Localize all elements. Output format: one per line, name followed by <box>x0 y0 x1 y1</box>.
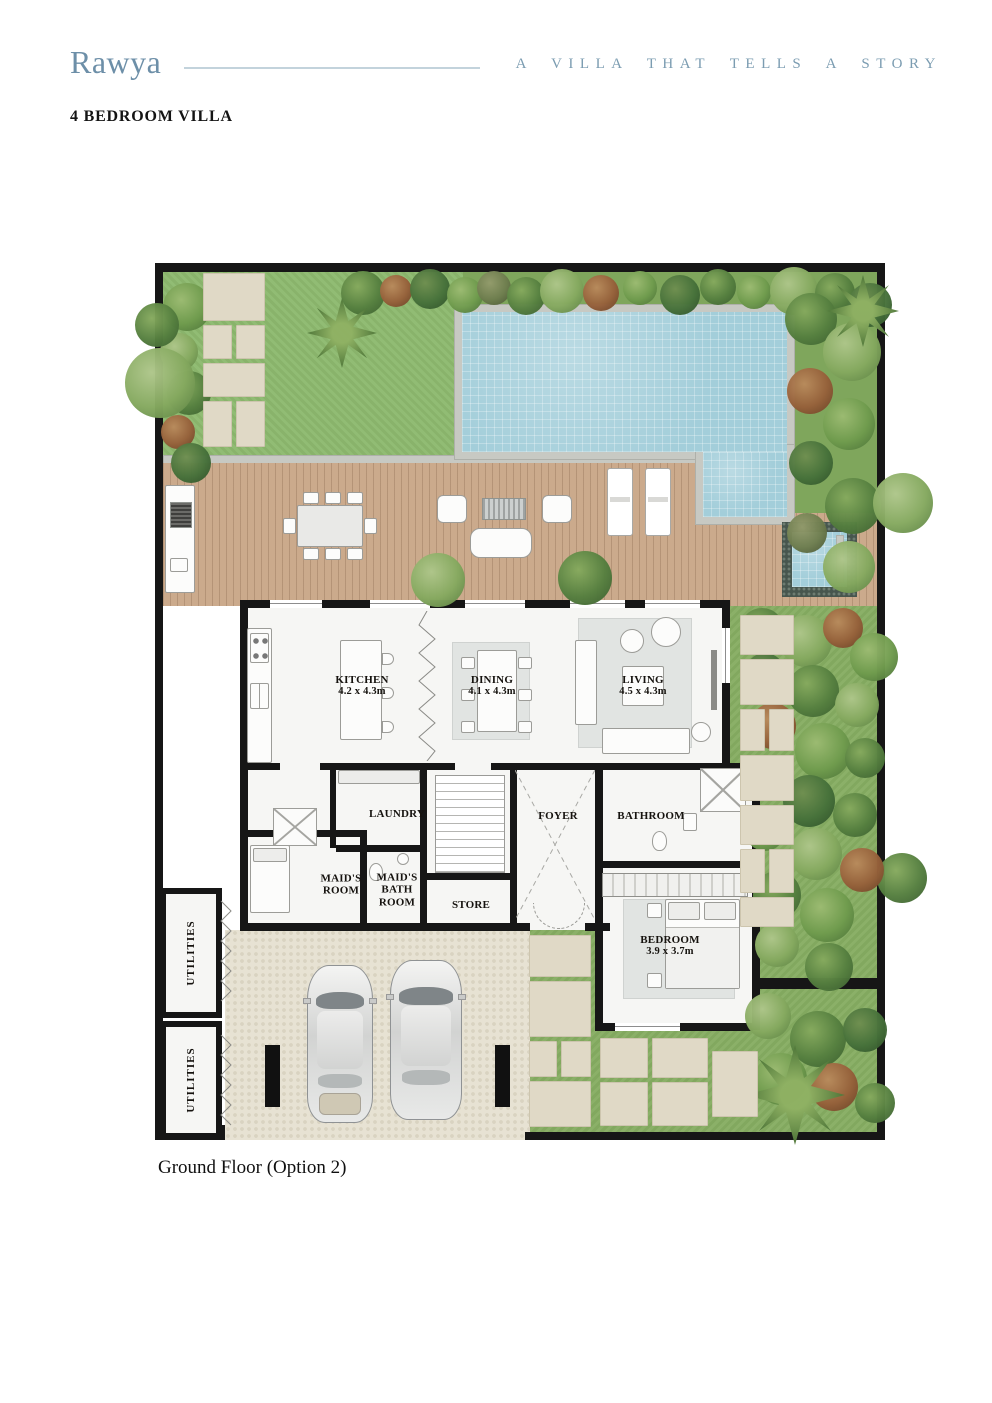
stone-paver <box>652 1038 708 1078</box>
stone-paver <box>740 805 794 845</box>
swimming-pool <box>462 312 787 452</box>
shrub <box>790 828 842 880</box>
shrub <box>125 348 195 418</box>
shrub <box>507 277 545 315</box>
stone-paver <box>712 1051 758 1117</box>
stone-paver <box>740 755 794 801</box>
outdoor-sofa <box>470 528 532 558</box>
stone-paver <box>203 325 232 359</box>
shrub <box>800 888 854 942</box>
shrub <box>737 275 771 309</box>
outdoor-chair <box>364 518 377 534</box>
lounge-chair <box>620 629 644 653</box>
stone-paver <box>740 849 765 893</box>
wash-basin <box>397 853 409 865</box>
shrub <box>840 848 884 892</box>
dining-chair <box>518 721 532 733</box>
shrub <box>833 793 877 837</box>
kitchen-sink <box>250 683 269 709</box>
shrub <box>341 271 385 315</box>
window <box>465 600 525 608</box>
bar-stool <box>382 721 394 733</box>
swimming-pool-lower <box>703 452 787 517</box>
bedroom-window <box>615 1023 680 1031</box>
louver-marks <box>219 899 233 1007</box>
stone-paver <box>236 325 265 359</box>
room-label-living: LIVING4.5 x 4.3m <box>619 674 667 698</box>
room-label-kitchen: KITCHEN4.2 x 4.3m <box>335 674 388 698</box>
car-windshield <box>399 987 452 1005</box>
room-label-maids-room: MAID'S ROOM <box>313 873 369 898</box>
folding-partition <box>417 611 437 761</box>
bed-pillow <box>668 902 700 920</box>
bar-stool <box>382 653 394 665</box>
car-mirror <box>386 994 394 1000</box>
outdoor-chair <box>325 548 341 560</box>
shrub <box>171 443 211 483</box>
dining-chair <box>461 657 475 669</box>
car-mirror <box>303 998 311 1004</box>
shrub <box>380 275 412 307</box>
outdoor-armchair <box>437 495 467 523</box>
room-label-store: STORE <box>452 899 490 911</box>
gate-pillar <box>495 1045 510 1107</box>
shrub <box>135 303 179 347</box>
stone-paver <box>203 401 232 447</box>
boundary-wall-north <box>155 263 885 272</box>
shower-tray <box>273 808 317 846</box>
shrub <box>805 943 853 991</box>
boundary-wall-south-right <box>525 1132 877 1140</box>
room-label-foyer: FOYER <box>538 810 578 822</box>
shrub <box>795 723 851 779</box>
outdoor-chair <box>325 492 341 504</box>
shrub <box>660 275 700 315</box>
sofa-vertical <box>575 640 597 725</box>
swivel-chair <box>651 617 681 647</box>
car-roof <box>317 1011 363 1069</box>
brochure-page: Rawya A VILLA THAT TELLS A STORY 4 BEDRO… <box>0 0 992 1403</box>
palm-tree <box>307 298 377 368</box>
bathroom-wall-south <box>595 861 760 868</box>
car-mirror <box>369 998 377 1004</box>
stone-paver <box>740 709 765 751</box>
nightstand <box>647 973 662 988</box>
bed-pillow <box>704 902 736 920</box>
room-label-bedroom: BEDROOM3.9 x 3.7m <box>640 934 699 958</box>
shrub <box>789 441 833 485</box>
car-rear-window <box>318 1074 362 1088</box>
room-label-utilities-2: UTILITIES <box>185 1047 197 1112</box>
shrub <box>877 853 927 903</box>
car-roof <box>401 1006 451 1065</box>
shrub <box>873 473 933 533</box>
nightstand <box>647 903 662 918</box>
outdoor-armchair <box>542 495 572 523</box>
window <box>645 600 700 608</box>
car-rear-window <box>402 1070 450 1084</box>
house-wall-south-left <box>240 923 530 931</box>
palm-tree <box>827 275 899 347</box>
sofa-horizontal <box>602 728 690 754</box>
car-trunk <box>319 1093 361 1116</box>
wash-basin <box>683 813 697 831</box>
shrub <box>477 271 511 305</box>
shrub <box>823 398 875 450</box>
tv-unit <box>711 650 717 710</box>
stove <box>250 633 269 663</box>
foyer-ceiling-marks <box>515 770 595 920</box>
car-sedan <box>307 965 373 1123</box>
shrub <box>540 269 584 313</box>
shrub <box>558 551 612 605</box>
driveway <box>225 930 530 1140</box>
room-label-utilities-1: UTILITIES <box>185 920 197 985</box>
room-label-dining: DINING4.1 x 4.3m <box>468 674 516 698</box>
stone-paver <box>600 1038 648 1078</box>
shrub <box>410 269 450 309</box>
door-opening <box>455 763 491 770</box>
shrub <box>787 513 827 553</box>
stone-paver <box>652 1082 708 1126</box>
room-label-maids-bath: MAID'S BATH ROOM <box>374 872 420 909</box>
stone-paver <box>529 1081 591 1127</box>
outdoor-chair <box>347 492 363 504</box>
bathroom-wall-west <box>595 763 603 868</box>
gate-pillar <box>265 1045 280 1107</box>
stone-paver <box>529 1041 557 1077</box>
laundry-counter <box>338 770 420 784</box>
house-wall-living-east <box>722 600 730 772</box>
dining-chair <box>518 657 532 669</box>
shrub <box>835 683 879 727</box>
side-table <box>691 722 711 742</box>
car-windshield <box>316 992 365 1009</box>
outdoor-dining-table <box>297 505 363 547</box>
shrub <box>623 271 657 305</box>
maids-bath-wall-north <box>336 845 426 852</box>
outdoor-chair <box>303 548 319 560</box>
stairs-wall-west <box>420 763 427 930</box>
page-title: 4 BEDROOM VILLA <box>70 108 233 126</box>
shrub <box>787 368 833 414</box>
shrub <box>823 323 881 381</box>
car-mirror <box>458 994 466 1000</box>
brand-logo: Rawya <box>70 44 161 81</box>
sun-lounger <box>607 468 633 536</box>
floor-plan: KITCHEN4.2 x 4.3m DINING4.1 x 4.3m LIVIN… <box>155 263 885 1140</box>
store-wall-north <box>427 873 517 880</box>
stone-paver <box>203 273 265 321</box>
dining-chair <box>518 689 532 701</box>
shrub <box>823 541 875 593</box>
louver-marks <box>219 1033 233 1131</box>
shrub <box>843 1008 887 1052</box>
stone-paver <box>600 1082 648 1126</box>
shrub <box>855 1083 895 1123</box>
outdoor-chair <box>303 492 319 504</box>
sun-lounger <box>645 468 671 536</box>
outdoor-coffee-table <box>482 498 526 520</box>
shrub <box>755 923 799 967</box>
stone-paver <box>236 401 265 447</box>
window <box>270 600 322 608</box>
shrub <box>845 738 885 778</box>
stone-paver <box>769 849 794 893</box>
wardrobe <box>602 873 748 897</box>
palm-tree <box>745 1045 845 1145</box>
bbq-grill <box>170 502 192 528</box>
stone-paver <box>740 659 794 705</box>
outdoor-chair <box>347 548 363 560</box>
header-divider-line <box>184 67 480 69</box>
room-label-laundry: LAUNDRY <box>369 808 425 820</box>
car-suv <box>390 960 462 1120</box>
shrub <box>850 633 898 681</box>
shrub <box>745 993 791 1039</box>
shrub <box>411 553 465 607</box>
staircase <box>435 775 505 873</box>
stone-paver <box>561 1041 591 1077</box>
room-label-bathroom: BATHROOM <box>617 810 684 822</box>
plan-caption: Ground Floor (Option 2) <box>158 1157 346 1179</box>
stone-paver <box>203 363 265 397</box>
living-window <box>722 628 730 683</box>
brand-tagline: A VILLA THAT TELLS A STORY <box>516 56 942 73</box>
stone-paver <box>740 897 794 927</box>
outdoor-chair <box>283 518 296 534</box>
shrub <box>583 275 619 311</box>
stone-paver <box>769 709 794 751</box>
stone-paver <box>529 935 591 977</box>
toilet <box>652 831 667 851</box>
shrub <box>700 269 736 305</box>
shrub <box>787 665 839 717</box>
dining-chair <box>461 721 475 733</box>
maids-bed-pillow <box>253 848 287 862</box>
stone-paver <box>529 981 591 1037</box>
door-opening <box>280 763 320 770</box>
stone-paver <box>740 615 794 655</box>
outdoor-sink <box>170 558 188 572</box>
